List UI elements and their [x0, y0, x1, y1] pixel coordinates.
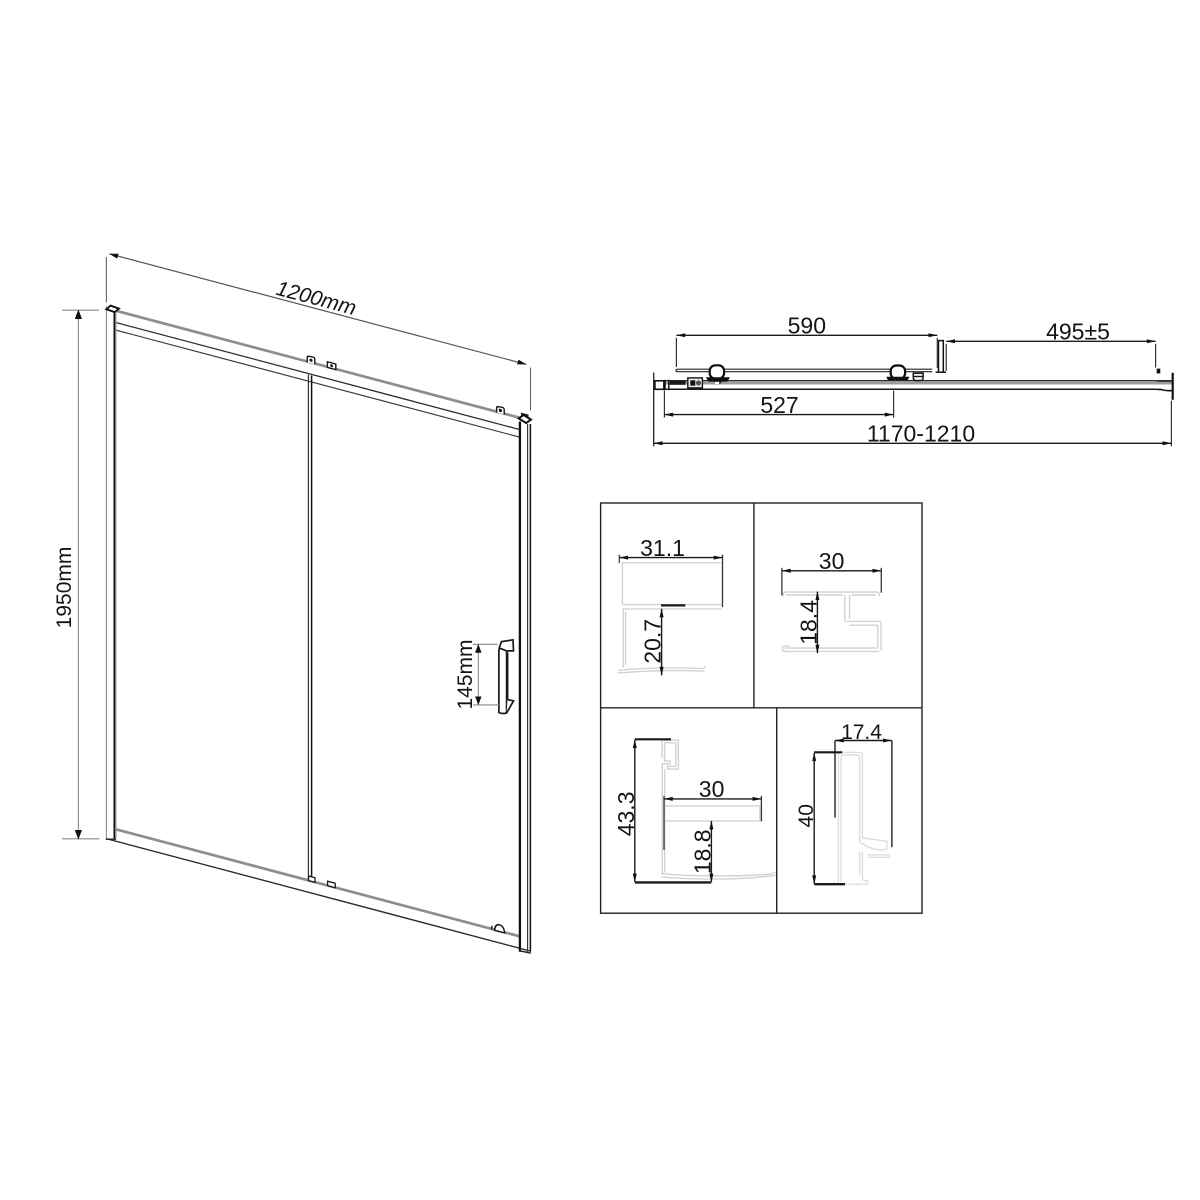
svg-text:30: 30	[699, 776, 725, 802]
svg-text:1170-1210: 1170-1210	[867, 421, 975, 447]
svg-text:20.7: 20.7	[640, 619, 666, 664]
svg-text:590: 590	[788, 313, 826, 339]
svg-text:527: 527	[760, 392, 798, 418]
svg-text:145mm: 145mm	[454, 639, 477, 709]
svg-text:17.4: 17.4	[841, 721, 882, 744]
svg-text:18.8: 18.8	[690, 829, 716, 874]
svg-text:1950mm: 1950mm	[53, 547, 76, 629]
svg-text:30: 30	[819, 548, 845, 574]
svg-text:18.4: 18.4	[796, 600, 822, 645]
svg-text:495±5: 495±5	[1046, 319, 1110, 345]
svg-text:40: 40	[795, 804, 818, 827]
svg-text:31.1: 31.1	[640, 535, 685, 561]
svg-text:43.3: 43.3	[613, 792, 639, 837]
